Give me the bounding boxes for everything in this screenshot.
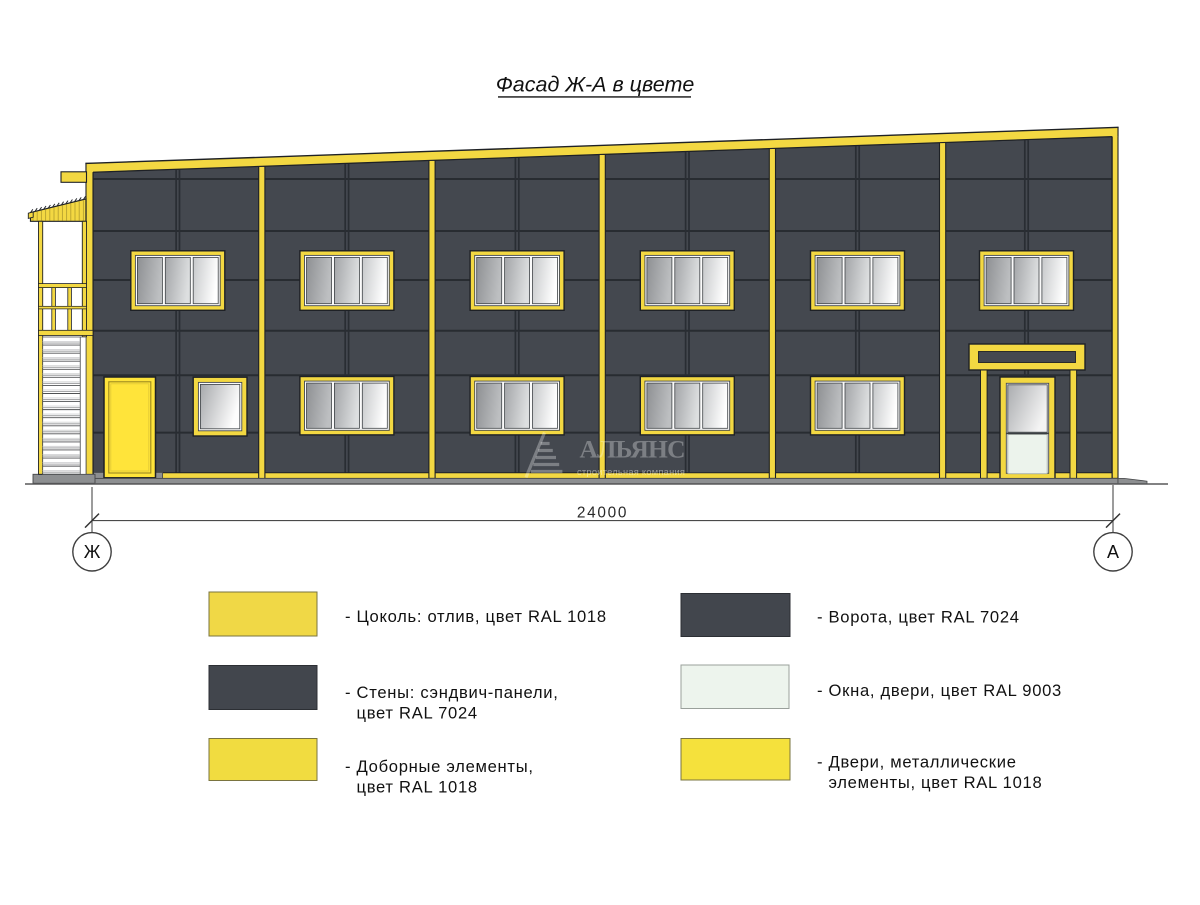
svg-text:Ж: Ж bbox=[84, 542, 101, 562]
svg-text:24000: 24000 bbox=[577, 505, 628, 522]
svg-text:- Ворота, цвет RAL 7024: - Ворота, цвет RAL 7024 bbox=[817, 608, 1020, 627]
svg-text:элементы, цвет RAL 1018: элементы, цвет RAL 1018 bbox=[829, 773, 1043, 792]
svg-text:- Цоколь: отлив, цвет RAL 1018: - Цоколь: отлив, цвет RAL 1018 bbox=[345, 607, 607, 626]
svg-text:- Доборные элементы,: - Доборные элементы, bbox=[345, 757, 534, 776]
svg-text:строительная компания: строительная компания bbox=[577, 467, 685, 477]
svg-text:- Стены: сэндвич-панели,: - Стены: сэндвич-панели, bbox=[345, 683, 559, 702]
svg-text:цвет RAL 1018: цвет RAL 1018 bbox=[357, 778, 478, 797]
svg-text:- Окна, двери, цвет RAL 9003: - Окна, двери, цвет RAL 9003 bbox=[817, 681, 1062, 700]
svg-text:цвет RAL 7024: цвет RAL 7024 bbox=[357, 704, 478, 723]
svg-text:Фасад Ж-А в цвете: Фасад Ж-А в цвете bbox=[496, 73, 695, 97]
svg-text:А: А bbox=[1107, 542, 1119, 562]
svg-text:АЛЬЯНС: АЛЬЯНС bbox=[580, 435, 685, 464]
svg-text:- Двери, металлические: - Двери, металлические bbox=[817, 753, 1017, 772]
